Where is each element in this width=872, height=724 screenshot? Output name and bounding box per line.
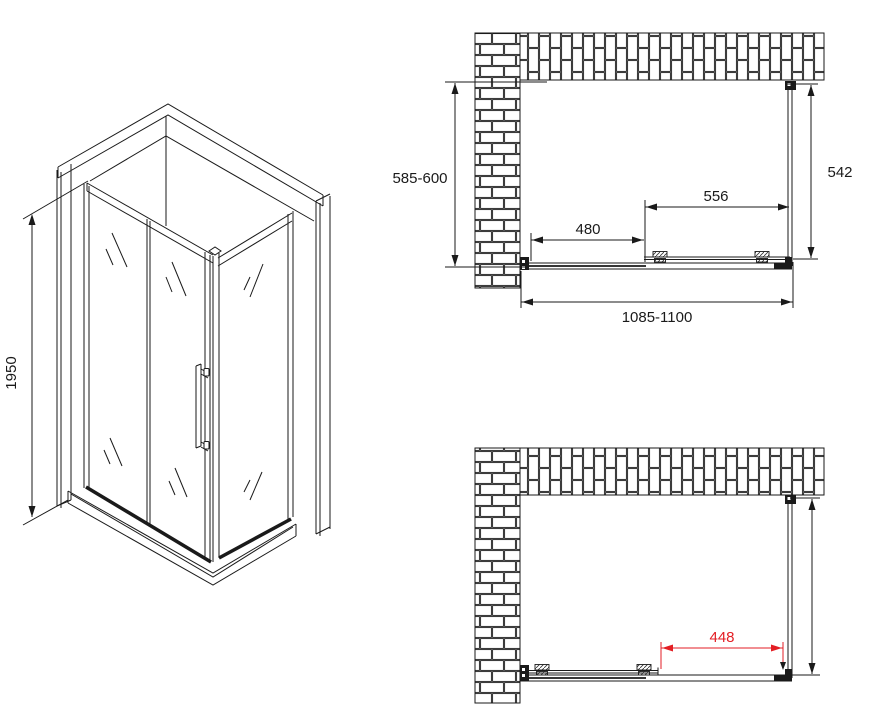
side-panel-plan bbox=[785, 81, 796, 266]
door-roller bbox=[637, 665, 651, 676]
door-roller bbox=[755, 252, 769, 263]
technical-drawing-canvas: 1950 bbox=[0, 0, 872, 724]
brick-wall-left bbox=[475, 448, 520, 703]
door-track-assembly-open bbox=[520, 665, 792, 682]
side-panel bbox=[218, 211, 293, 520]
brick-wall-top bbox=[520, 448, 824, 495]
side-panel-dimension: 542 bbox=[786, 84, 853, 259]
wall-profile-right bbox=[316, 194, 330, 536]
door-handle bbox=[196, 364, 209, 451]
shower-enclosure-drawing: 1950 bbox=[0, 0, 872, 724]
glass-reflection-marks-door bbox=[104, 233, 187, 497]
total-width-dimension: 1085-1100 bbox=[521, 262, 793, 326]
isometric-view: 1950 bbox=[3, 104, 330, 585]
side-panel-dimension-label: 542 bbox=[827, 164, 852, 181]
total-width-dimension-label: 1085-1100 bbox=[622, 309, 693, 326]
door-track-assembly bbox=[520, 252, 792, 271]
depth-dimension-label: 585-600 bbox=[392, 170, 447, 187]
door-width-dimension-label: 556 bbox=[703, 188, 728, 205]
wall-bracket bbox=[520, 665, 529, 681]
side-dimension-unlabeled bbox=[790, 498, 820, 675]
brick-wall-top bbox=[520, 33, 824, 80]
door-roller bbox=[653, 252, 667, 263]
plan-view-closed: 585-600 542 556 480 bbox=[392, 33, 852, 326]
fixed-panel-dimension: 480 bbox=[531, 221, 644, 261]
height-dimension: 1950 bbox=[3, 181, 88, 525]
top-frame bbox=[58, 104, 323, 226]
door-width-dimension: 556 bbox=[645, 188, 789, 262]
height-dimension-label: 1950 bbox=[3, 356, 20, 389]
base-tray bbox=[68, 487, 296, 585]
plan-view-open: 448 bbox=[475, 448, 824, 703]
side-panel-plan bbox=[785, 495, 796, 678]
glass-reflection-marks-side bbox=[244, 264, 263, 500]
door-roller bbox=[535, 665, 549, 676]
depth-dimension: 585-600 bbox=[392, 82, 547, 267]
brick-wall-left bbox=[475, 33, 520, 288]
fixed-panel-dimension-label: 480 bbox=[575, 221, 600, 238]
door-wall bbox=[84, 183, 221, 562]
wall-profile-left bbox=[57, 164, 71, 508]
opening-width-dimension: 448 bbox=[661, 629, 786, 670]
opening-width-dimension-label: 448 bbox=[709, 629, 734, 646]
